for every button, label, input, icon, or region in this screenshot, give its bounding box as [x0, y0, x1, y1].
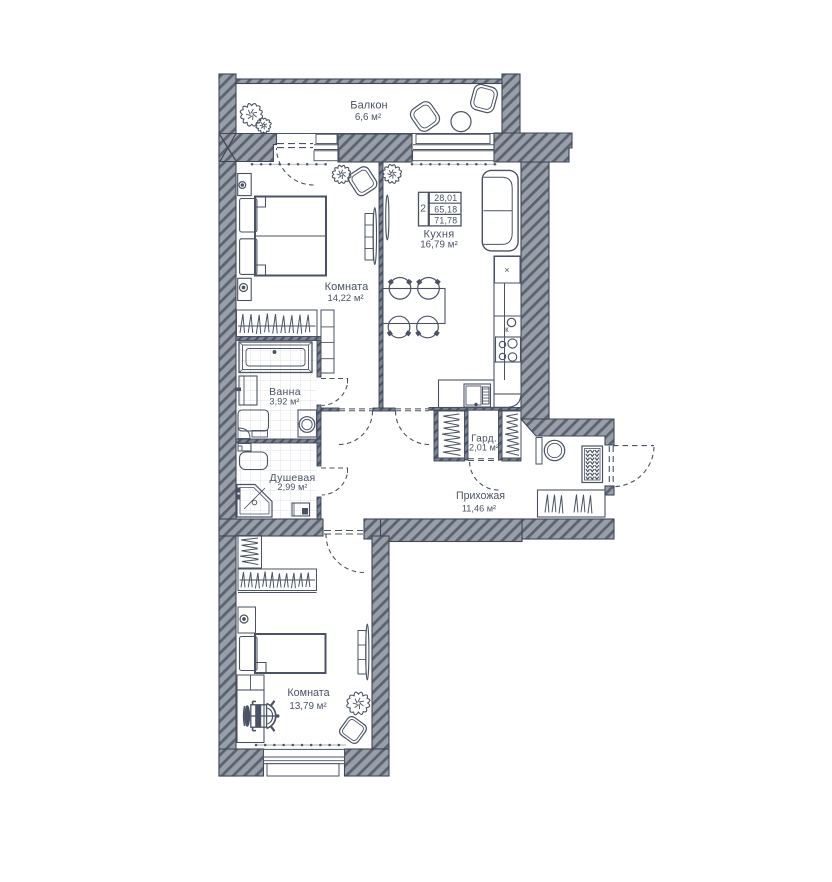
svg-text:14,22 м²: 14,22 м² [327, 293, 363, 304]
svg-text:13,79 м²: 13,79 м² [289, 701, 327, 712]
svg-text:28,01: 28,01 [434, 193, 457, 203]
svg-text:Комната: Комната [325, 281, 370, 293]
svg-text:65,18: 65,18 [434, 204, 457, 214]
svg-text:к: к [505, 325, 509, 334]
svg-text:71,78: 71,78 [434, 216, 457, 226]
svg-text:×: × [504, 265, 510, 275]
svg-text:Комната: Комната [287, 687, 329, 699]
svg-text:2,01 м²: 2,01 м² [469, 443, 499, 453]
svg-text:16,79 м²: 16,79 м² [420, 240, 458, 251]
svg-text:2: 2 [420, 203, 426, 215]
svg-text:3,92 м²: 3,92 м² [270, 397, 300, 407]
svg-text:Балкон: Балкон [350, 100, 387, 112]
svg-text:6,6 м²: 6,6 м² [355, 112, 382, 123]
svg-text:2,99 м²: 2,99 м² [278, 482, 308, 492]
svg-text:11,46 м²: 11,46 м² [462, 504, 496, 514]
svg-text:Прихожая: Прихожая [456, 490, 505, 502]
